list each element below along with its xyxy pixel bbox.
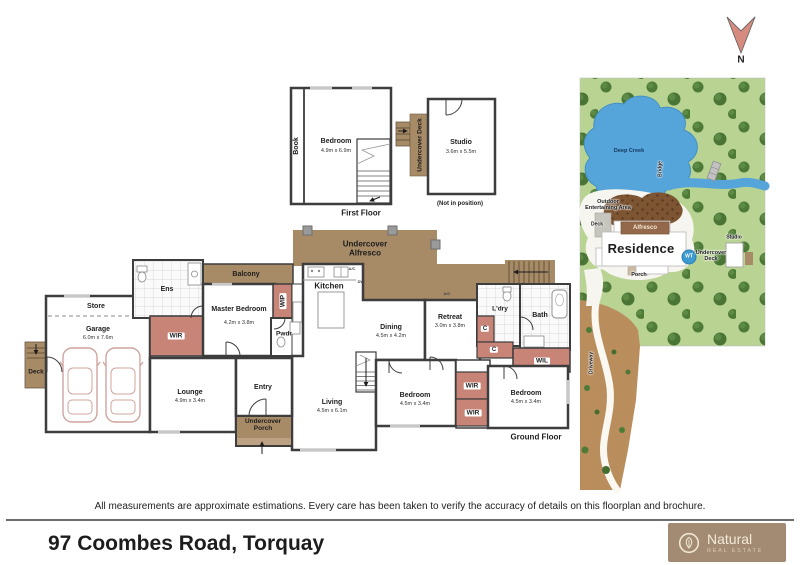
room-label-pwdr: Pwdr [276,330,292,337]
studio-plan [396,99,495,194]
room-label-wil: WIL [534,357,550,364]
ground-floor-title: Ground Floor [510,434,561,443]
room-label-bedroom2: Bedroom [400,392,431,400]
site-map [579,78,765,490]
room-label-master: Master Bedroom [211,306,267,314]
alfresco-post [431,240,440,249]
map-label-alfresco: Alfresco [633,225,657,231]
map-label-studio: Studio [726,235,742,240]
room-label-dining: Dining [380,324,402,332]
room-label-bedroom3: Bedroom [511,390,542,398]
room-label-wir2: WIR [464,382,481,389]
room-label-garage: Garage [86,326,110,334]
property-address: 97 Coombes Road, Torquay [48,532,324,556]
agency-logo: Natural REAL ESTATE [668,523,786,562]
logo-name: Natural [707,532,763,546]
room-dims-studio: 3.6m x 5.5m [446,150,476,156]
map-label-undercover-deck: Undercover Deck [690,251,732,263]
room-dims-ff-bedroom: 4.9m x 6.9m [321,149,351,155]
north-label: N [737,56,744,67]
map-label-outdoor-area: Outdoor Entertaining Area [585,200,631,212]
leaf-logo-icon [678,532,700,554]
room-label-wip: WIP [279,293,286,309]
room-label-ldry: L'dry [492,305,508,312]
room-label-living: Living [322,399,343,407]
ff-stairs [357,139,390,203]
room-label-wir1: WIR [168,332,185,339]
room-label-retreat: Retreat [438,314,462,322]
room-label-studio-deck: Undercover Deck [416,116,423,174]
room-label-kitchen: Kitchen [314,283,343,292]
room-label-ff-bedroom: Bedroom [321,138,352,146]
room-label-store: Store [87,303,105,311]
room-label-book: Book [293,137,301,155]
studio-note: (Not in position) [437,201,483,207]
label-ac-retreat: A/C [444,292,451,296]
room-dims-lounge: 4.9m x 3.4m [175,399,205,405]
alfresco-post [388,226,397,235]
disclaimer-text: All measurements are approximate estimat… [0,501,800,512]
room-dims-garage: 6.0m x 7.6m [83,336,113,342]
room-label-ens: Ens [161,286,174,294]
room-dims-master: 4.2m x 3.8m [224,321,254,327]
first-floor-plan [291,88,391,204]
room-label-deck: Deck [28,368,44,375]
map-label-driveway: Driveway [589,352,594,374]
room-label-wir3: WIR [465,409,482,416]
room-dims-dining: 4.5m x 4.2m [376,334,406,340]
logo-subtitle: REAL ESTATE [707,548,763,554]
room-label-lounge: Lounge [177,389,202,397]
map-label-bridge: Bridge [658,161,663,177]
kitchen-island [318,292,344,328]
room-dims-living: 4.5m x 6.1m [317,409,347,415]
map-studio-deck [745,252,753,265]
room-label-c2: C [490,347,498,353]
first-floor-title: First Floor [341,210,381,219]
floorplan-drawing [0,0,800,565]
room-label-porch: Undercover Porch [237,418,289,432]
room-dims-bedroom2: 4.5m x 3.4m [400,402,430,408]
room-label-balcony: Balcony [232,271,259,279]
internal-stairs [356,352,376,392]
room-label-bath: Bath [532,312,548,320]
label-dw: DW [358,280,365,284]
room-label-studio: Studio [450,139,472,147]
label-ac-kitchen: A/C [349,267,356,271]
north-arrow-icon [727,17,755,53]
map-label-porch: Porch [631,273,647,279]
map-label-residence: Residence [608,242,675,256]
floorplan-brochure: N Book Bedroom 4.9m x 6.9m First Floor U… [0,0,800,565]
room-label-entry: Entry [254,384,272,392]
room-label-alfresco: Undercover Alfresco [329,240,401,257]
room-dims-retreat: 3.0m x 3.8m [435,324,465,330]
room-dims-bedroom3: 4.5m x 3.4m [511,400,541,406]
alfresco-post [303,226,312,235]
room-label-c1: C [481,326,489,332]
map-label-deck: Deck [591,222,603,227]
map-label-deep-creek: Deep Creek [613,149,645,155]
